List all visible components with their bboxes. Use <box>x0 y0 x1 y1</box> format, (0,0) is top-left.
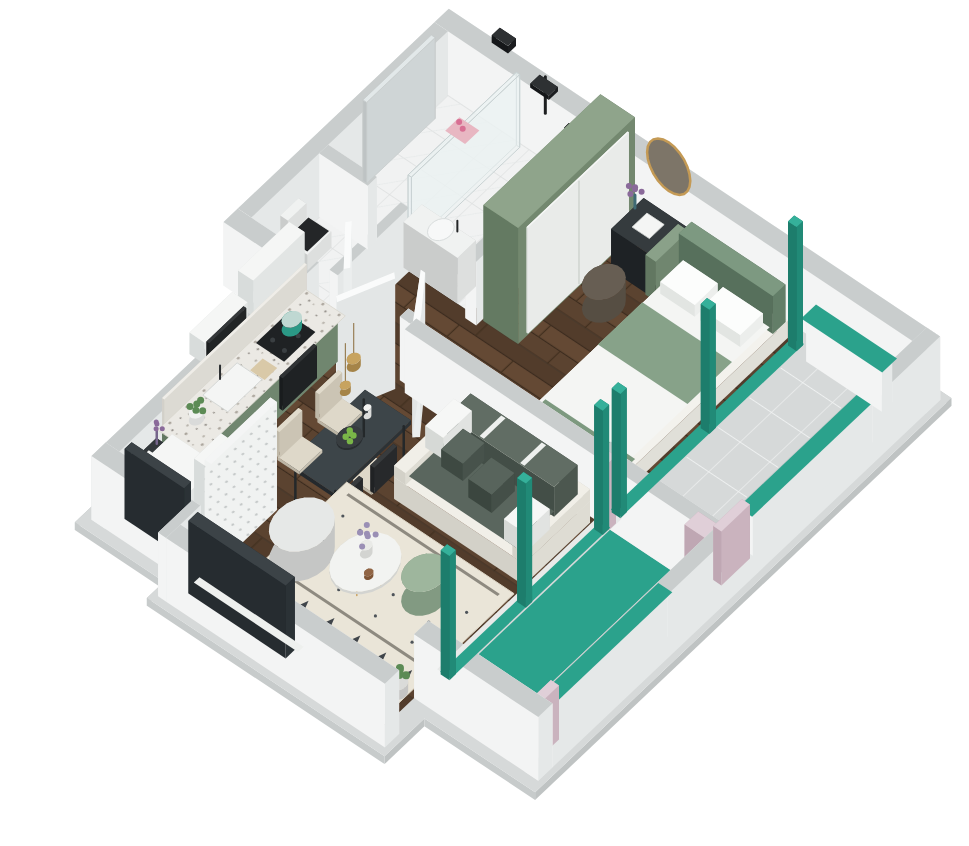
vanity-flowers <box>639 189 645 195</box>
living-window-post-1 <box>594 405 603 535</box>
east-pink-accent-north <box>713 526 721 585</box>
coffee-table-plant <box>365 533 371 539</box>
coffee-table-plant <box>364 522 370 528</box>
vanity-flowers <box>632 186 638 192</box>
toiletry-bottles <box>456 119 462 125</box>
floorplan-canvas <box>0 0 969 846</box>
entry-flowers <box>154 419 159 424</box>
coffee-table-plant <box>357 529 363 535</box>
living-window-post-2 <box>526 478 532 608</box>
rug-dot-pattern <box>341 514 344 517</box>
dining-chair-3-back <box>370 465 374 493</box>
living-window-post-1 <box>603 405 609 535</box>
corner-plant-leaves <box>402 671 410 679</box>
bedroom-window-post-3 <box>621 388 627 518</box>
living-window-post-2 <box>517 478 526 608</box>
vanity-flowers <box>626 183 632 189</box>
coffee-table-plant <box>373 532 379 538</box>
counter-plant-leaves <box>192 407 199 414</box>
bedroom-window-post-2 <box>701 304 710 434</box>
rug-dot-pattern <box>392 593 395 596</box>
bath-wc-stub-wall <box>368 177 377 249</box>
entry-flowers <box>154 426 159 431</box>
south-jog-wall <box>158 533 166 602</box>
living-south-wall <box>385 670 399 747</box>
coffee-table-plant <box>359 543 365 549</box>
green-apples <box>347 430 353 436</box>
bedroom-window-post-1 <box>797 221 803 351</box>
apartment-floorplan-render <box>0 0 969 846</box>
counter-plant-leaves <box>199 407 206 414</box>
toiletry-bottles <box>460 126 466 132</box>
vanity-flowers <box>627 191 633 197</box>
rug-dot-pattern <box>374 614 377 617</box>
rug-dot-pattern <box>410 641 413 644</box>
counter-plant-leaves <box>197 397 204 404</box>
living-window-post-3 <box>441 550 450 680</box>
cooktop-burners <box>270 337 275 342</box>
leaning-mirror-panel <box>363 100 367 183</box>
dining-chair-1-back <box>316 392 320 421</box>
living-window-post-3 <box>450 550 456 680</box>
cooktop-burners <box>282 348 287 353</box>
wardrobe <box>484 205 519 344</box>
bedroom-window-post-2 <box>709 304 715 434</box>
oven-front <box>280 376 283 411</box>
counter-plant-leaves <box>187 403 194 410</box>
rug-dot-pattern <box>465 611 468 614</box>
green-apples <box>347 438 353 444</box>
bedroom-window-post-1 <box>788 221 797 351</box>
south-balcony-wall <box>538 704 552 781</box>
wardrobe-sliding-doors <box>527 227 528 334</box>
bedroom-window-post-3 <box>612 388 621 518</box>
entry-flowers <box>160 426 165 431</box>
